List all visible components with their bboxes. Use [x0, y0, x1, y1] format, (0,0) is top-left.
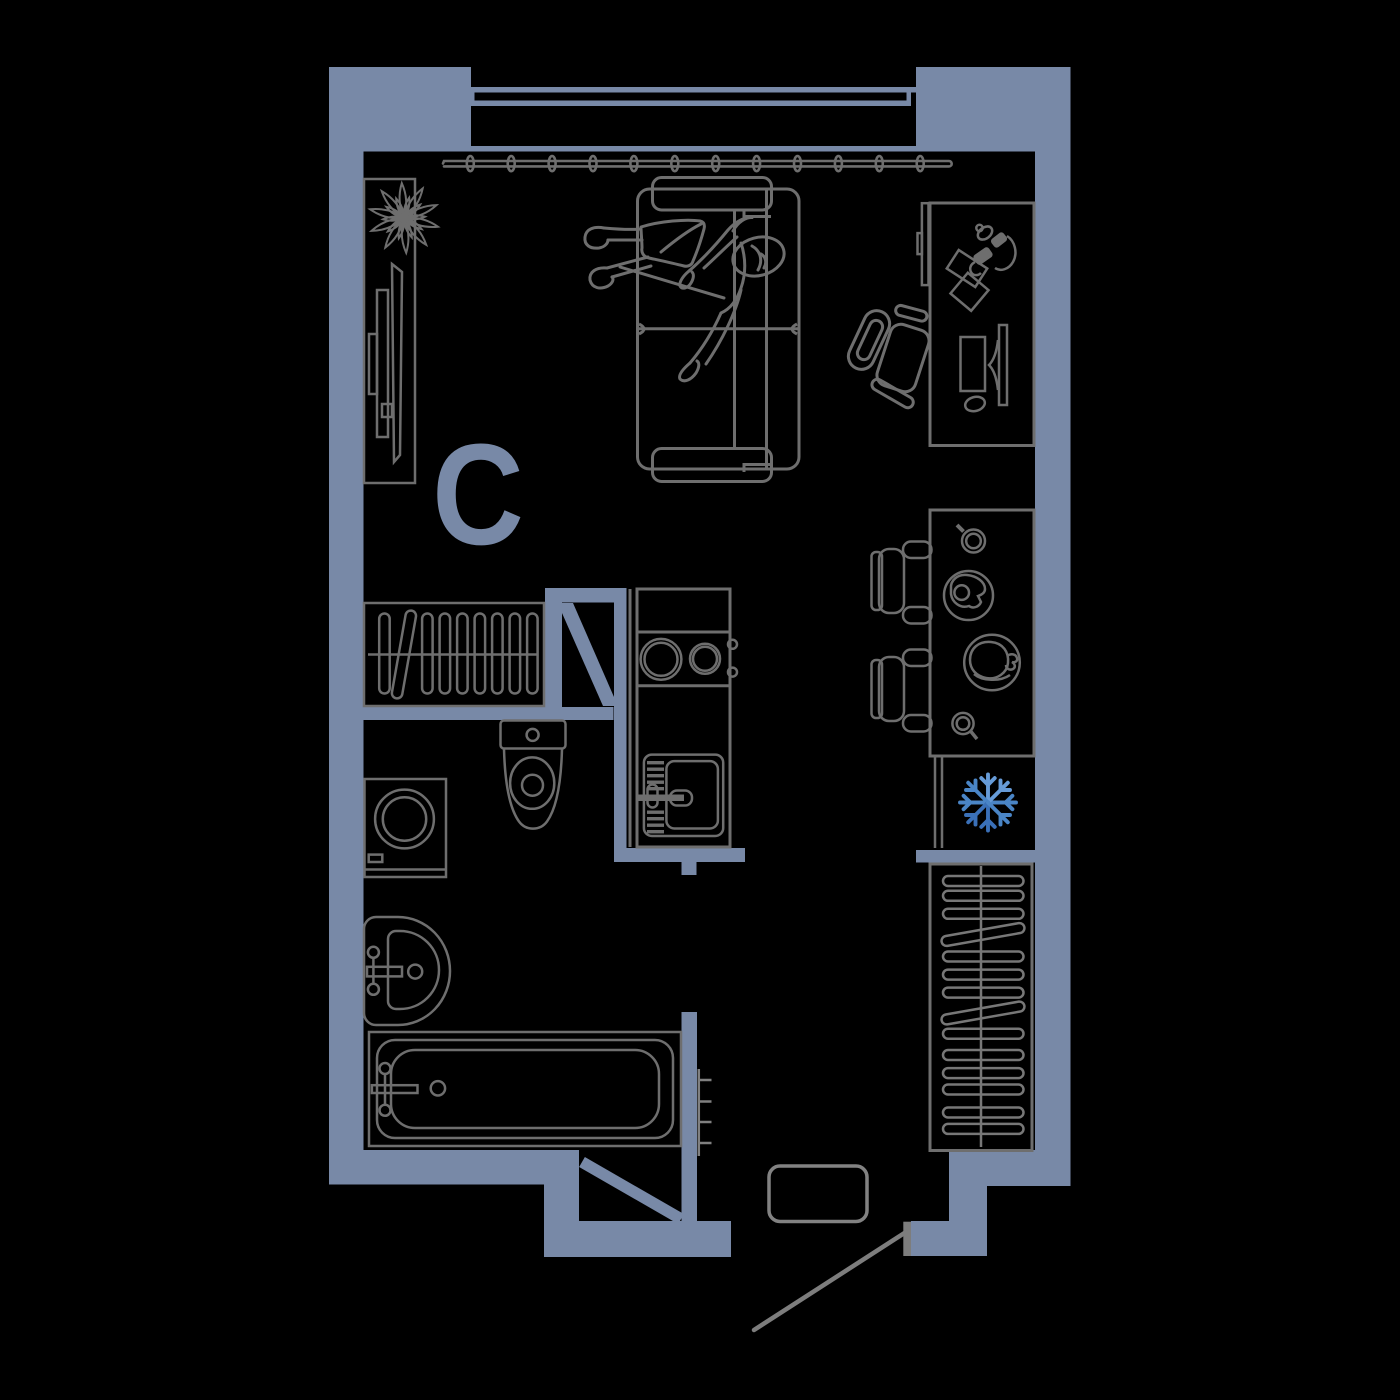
svg-text:C: C: [432, 414, 524, 575]
